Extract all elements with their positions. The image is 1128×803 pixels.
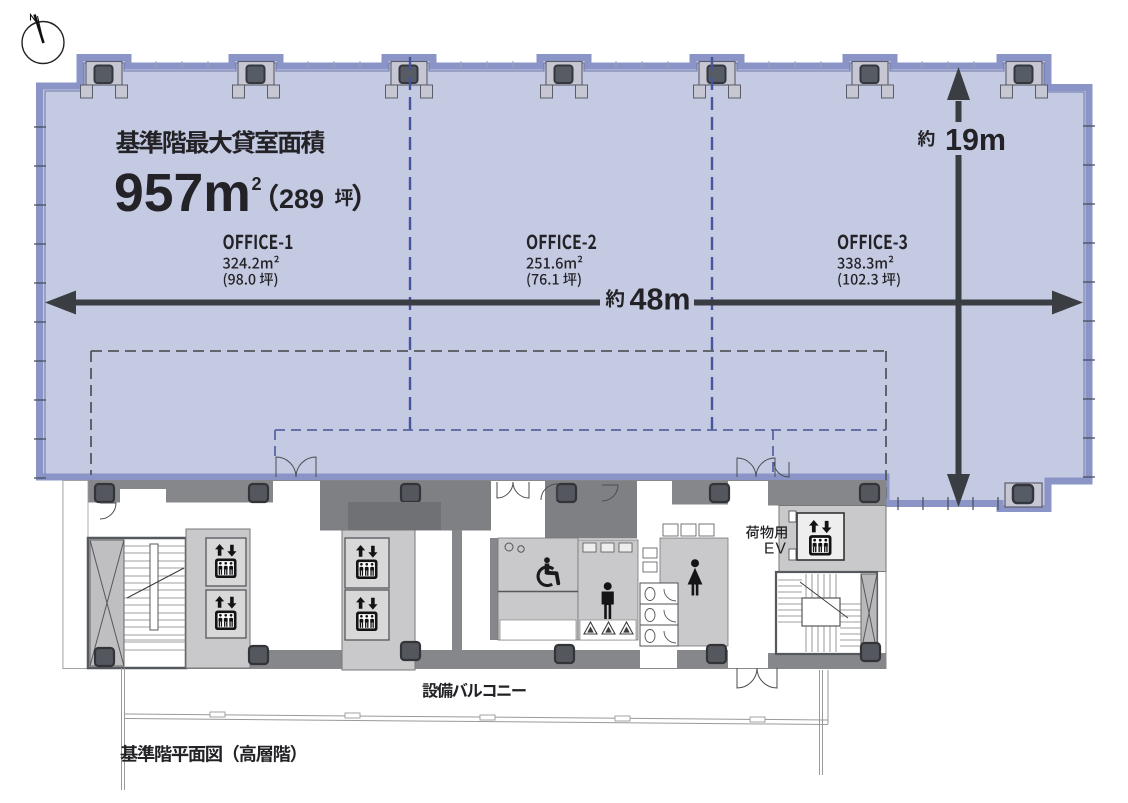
svg-text:48m: 48m <box>630 283 691 317</box>
svg-text:957m: 957m <box>114 164 251 223</box>
svg-text:EV: EV <box>764 541 787 558</box>
svg-text:289: 289 <box>279 184 324 214</box>
svg-text:19m: 19m <box>945 123 1006 157</box>
svg-text:2: 2 <box>252 174 262 194</box>
